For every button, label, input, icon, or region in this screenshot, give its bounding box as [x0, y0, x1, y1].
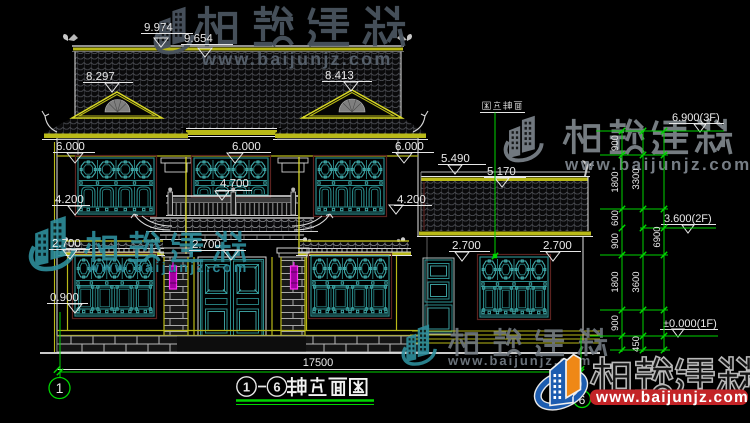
- svg-text:3.600(2F): 3.600(2F): [664, 213, 712, 225]
- svg-text:www.baijunjz.com: www.baijunjz.com: [201, 49, 393, 69]
- svg-text:3300: 3300: [631, 168, 642, 189]
- svg-text:6900: 6900: [652, 226, 663, 247]
- svg-text:4.700: 4.700: [220, 178, 249, 190]
- svg-text:5.170: 5.170: [487, 166, 516, 178]
- svg-text:2.700: 2.700: [192, 239, 221, 251]
- svg-text:4.200: 4.200: [397, 194, 426, 206]
- svg-text:6.900(3F): 6.900(3F): [672, 112, 720, 124]
- svg-text:450: 450: [631, 336, 642, 352]
- svg-text:900: 900: [610, 315, 621, 331]
- svg-text:6.000: 6.000: [232, 141, 261, 153]
- svg-text:900: 900: [610, 135, 621, 151]
- svg-text:www.baijunjz.com: www.baijunjz.com: [595, 389, 749, 406]
- svg-text:2.700: 2.700: [452, 240, 481, 252]
- svg-text:9.974: 9.974: [144, 22, 173, 34]
- svg-text:17500: 17500: [303, 357, 334, 369]
- svg-text:6.000: 6.000: [56, 141, 85, 153]
- svg-text:3600: 3600: [631, 271, 642, 292]
- svg-text:8.413: 8.413: [325, 70, 354, 82]
- svg-text:1: 1: [243, 380, 250, 395]
- svg-text:9.654: 9.654: [184, 33, 213, 45]
- svg-text:0.900: 0.900: [50, 292, 79, 304]
- svg-text:2.700: 2.700: [52, 238, 81, 250]
- svg-text:5.490: 5.490: [441, 153, 470, 165]
- svg-text:www.baijunjz.com: www.baijunjz.com: [564, 155, 750, 174]
- svg-text:6.000: 6.000: [395, 141, 424, 153]
- svg-text:900: 900: [610, 233, 621, 249]
- svg-text:2.700: 2.700: [543, 240, 572, 252]
- svg-text:8.297: 8.297: [86, 71, 115, 83]
- svg-text:www.baijunjz.com: www.baijunjz.com: [87, 259, 249, 275]
- svg-text:±0.000(1F): ±0.000(1F): [663, 318, 717, 330]
- svg-text:6: 6: [273, 380, 280, 395]
- svg-text:4.200: 4.200: [55, 194, 84, 206]
- svg-text:1800: 1800: [610, 271, 621, 292]
- svg-text:600: 600: [610, 210, 621, 226]
- svg-text:1: 1: [56, 380, 64, 396]
- svg-text:1800: 1800: [610, 171, 621, 192]
